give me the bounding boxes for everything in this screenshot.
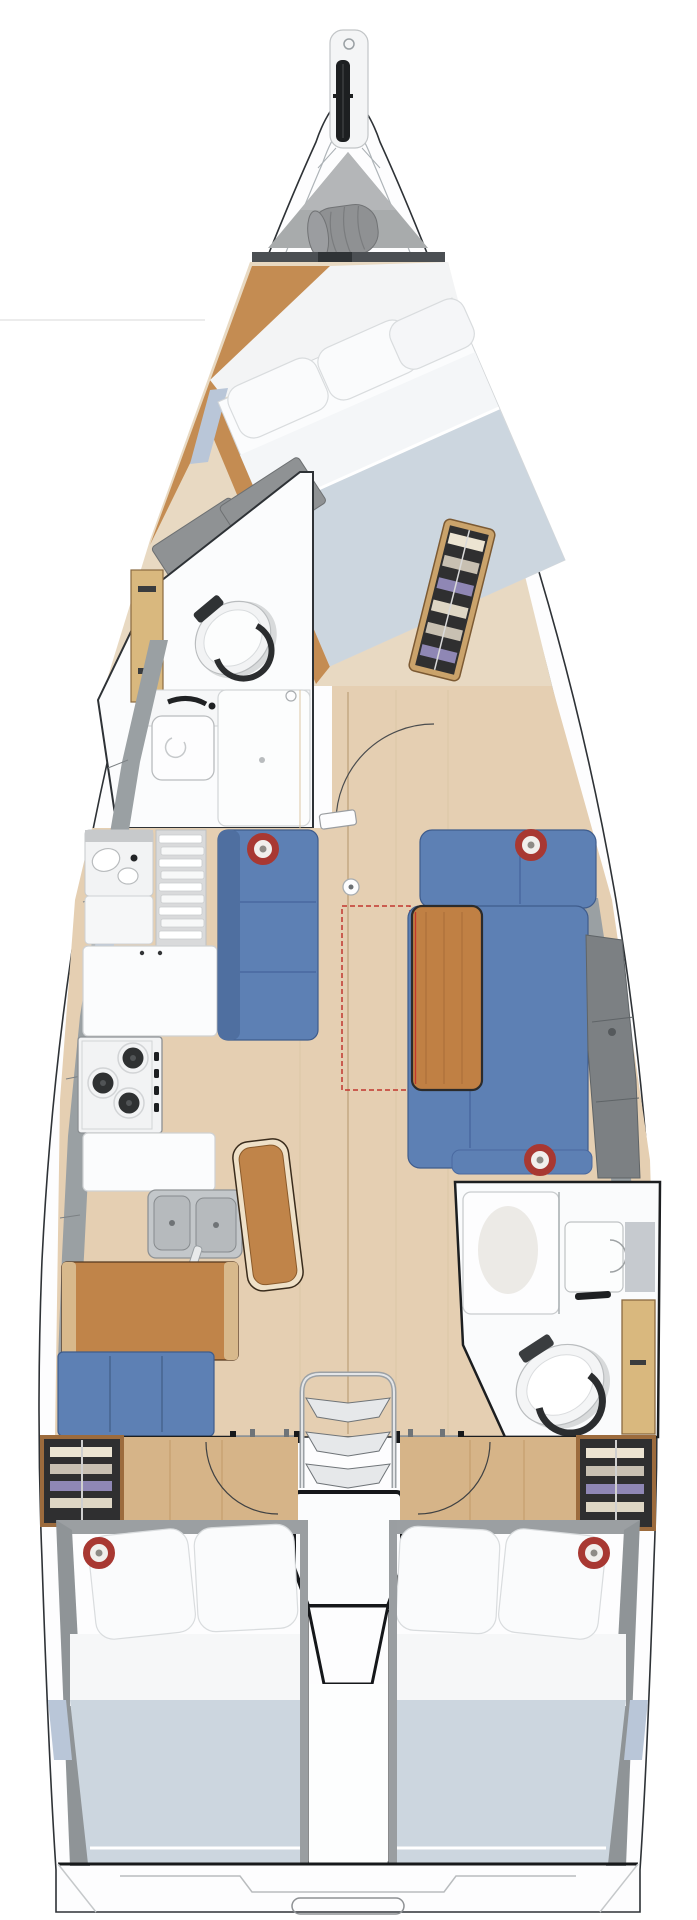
basin-faucet — [131, 855, 138, 862]
stove — [78, 1037, 162, 1133]
bed — [395, 1525, 626, 1864]
backrest-button — [608, 1028, 616, 1036]
galley-cabinet — [85, 896, 153, 944]
slat — [161, 871, 204, 879]
galley-counter-aft — [83, 1133, 215, 1191]
slat — [161, 847, 204, 855]
burner-cap — [130, 1055, 136, 1061]
sink-drain — [213, 1222, 219, 1228]
bed-duvet — [70, 1700, 300, 1864]
pillow — [395, 1525, 500, 1634]
bed-sheet — [70, 1634, 300, 1706]
washbasin — [152, 716, 214, 780]
shower-drain — [259, 757, 265, 763]
chart-table-rail — [224, 1262, 238, 1360]
bed — [70, 1523, 300, 1864]
stove-knob — [154, 1103, 159, 1112]
salon-table — [412, 906, 482, 1090]
settee-backrest — [218, 830, 240, 1040]
chart-table — [62, 1262, 238, 1360]
engine-box — [294, 1492, 402, 1606]
locker-handle — [138, 586, 156, 592]
soap-dish — [118, 868, 138, 884]
compression-post — [286, 691, 296, 701]
counter-latch — [158, 951, 162, 955]
galley-basin-unit — [85, 830, 153, 944]
slat — [159, 907, 202, 915]
slat — [159, 883, 202, 891]
aft-cabin-starboard — [389, 1437, 654, 1866]
settee-forward-bench — [420, 830, 596, 908]
aft-cabin-port — [42, 1437, 308, 1866]
bed-sheet — [396, 1634, 626, 1706]
chart-table-rail — [62, 1262, 76, 1360]
stove-knob — [154, 1052, 159, 1061]
aft-washbasin — [565, 1222, 623, 1292]
floor-plan-canvas — [0, 0, 697, 1920]
shower-glass-blur — [478, 1206, 538, 1294]
aft-head-locker — [622, 1300, 655, 1434]
stove-knob — [154, 1069, 159, 1078]
faucet-knob — [209, 703, 216, 710]
table-leg-pin — [349, 885, 354, 890]
speaker-center — [96, 1550, 103, 1557]
wardrobe — [42, 1437, 122, 1525]
slat — [159, 859, 202, 867]
inboard-wall — [389, 1520, 397, 1864]
nav-seat — [58, 1352, 214, 1436]
pillow — [193, 1523, 298, 1632]
speaker-center — [260, 846, 267, 853]
burner-cap — [100, 1080, 106, 1086]
speaker-center — [591, 1550, 598, 1557]
nav-station — [58, 1262, 238, 1436]
engine-bay-aft — [309, 1684, 387, 1866]
counter-latch — [140, 951, 144, 955]
galley-counter-forward — [83, 946, 217, 1036]
wardrobe — [578, 1437, 654, 1529]
sink-drain — [169, 1220, 175, 1226]
aft-head-counter — [625, 1222, 655, 1292]
stove-knob — [154, 1086, 159, 1095]
bowsprit — [330, 30, 368, 148]
speaker-center — [537, 1157, 544, 1164]
boat-floor-plan — [0, 0, 697, 1920]
settee-seat-edge — [452, 1150, 592, 1174]
bed-duvet — [396, 1700, 626, 1864]
galley-slat-cabinet — [156, 830, 206, 946]
slat — [159, 835, 202, 843]
slat — [159, 931, 202, 939]
slat — [161, 919, 204, 927]
double-sink — [148, 1190, 242, 1270]
burner-cap — [126, 1100, 132, 1106]
inboard-wall — [300, 1520, 308, 1864]
slat — [161, 895, 204, 903]
speaker-center — [528, 842, 535, 849]
locker-handle — [630, 1360, 646, 1365]
